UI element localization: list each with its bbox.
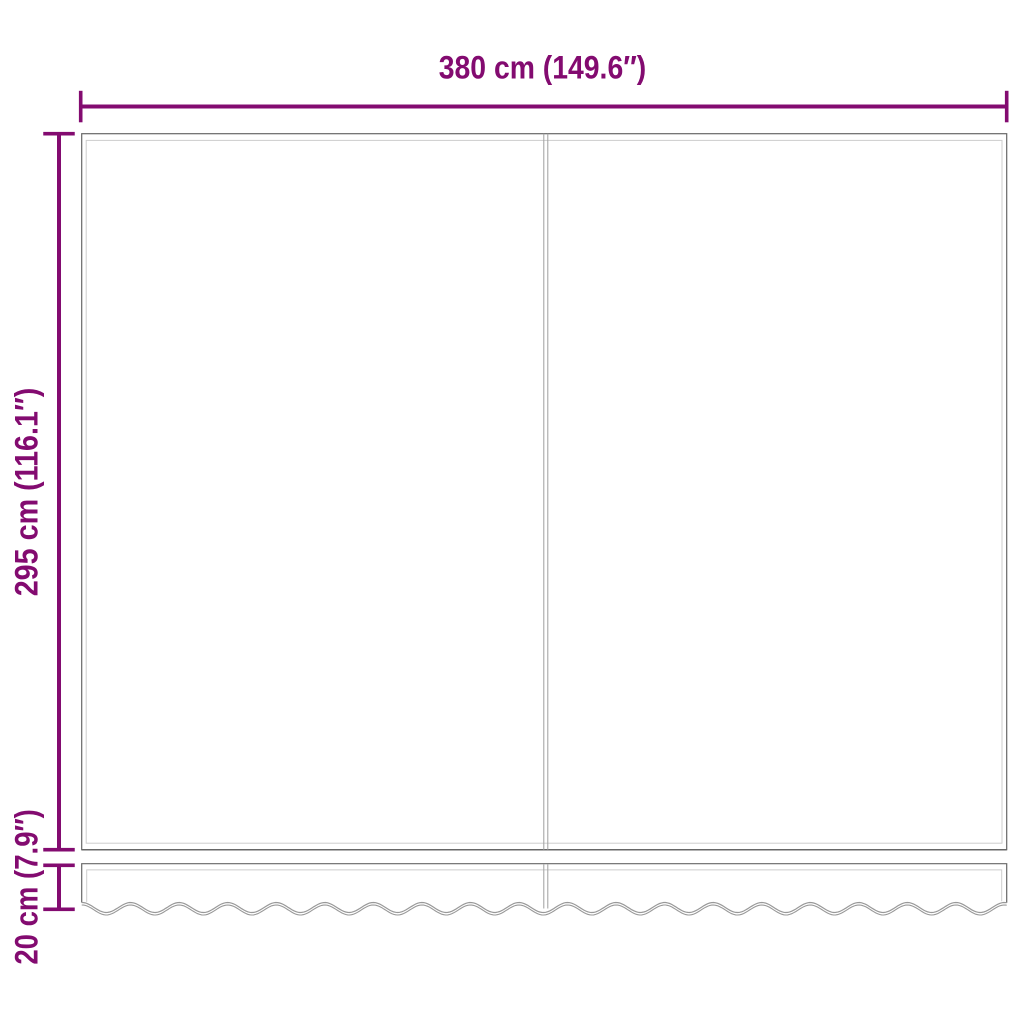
svg-text:20 cm (7.9″): 20 cm (7.9″) — [8, 809, 44, 965]
svg-text:380 cm (149.6″): 380 cm (149.6″) — [439, 49, 647, 85]
svg-text:295 cm (116.1″): 295 cm (116.1″) — [8, 388, 44, 597]
